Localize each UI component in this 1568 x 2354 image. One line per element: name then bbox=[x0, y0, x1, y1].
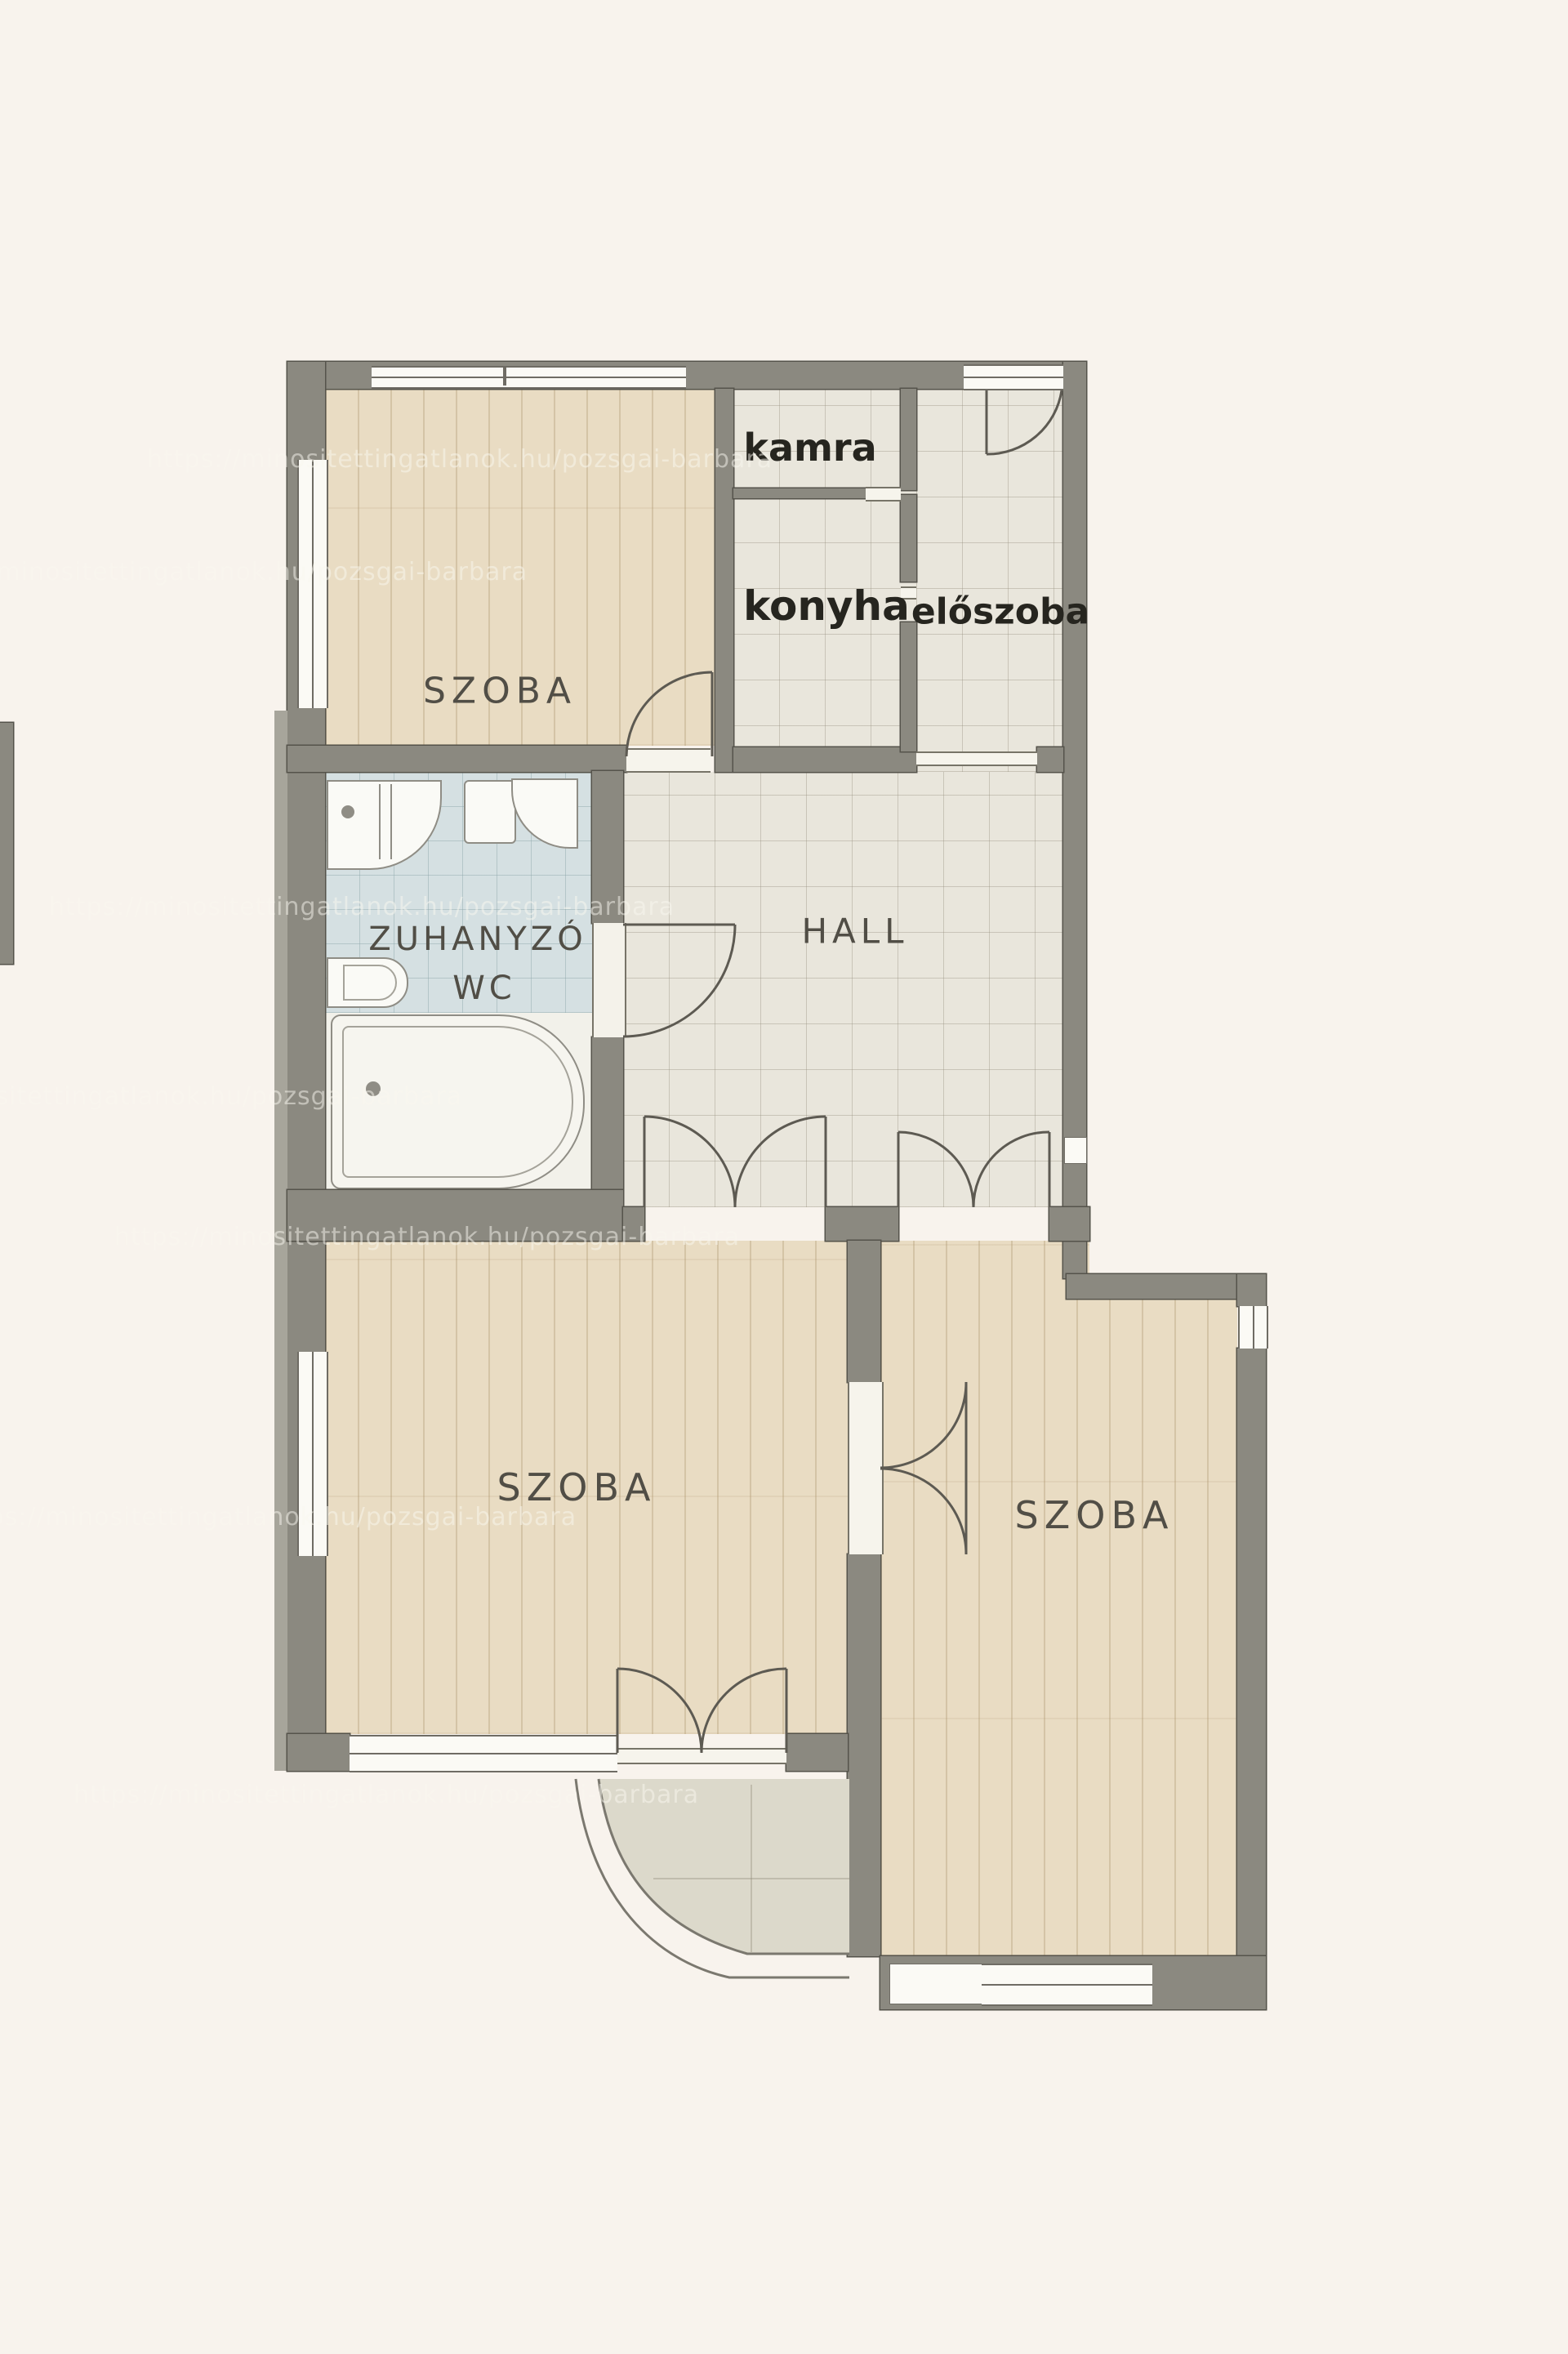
hall-floor bbox=[623, 772, 1063, 1207]
exterior-notch-mask bbox=[1089, 1241, 1241, 1277]
label-room-top-left: SZOBA bbox=[423, 671, 577, 712]
wall-hall-bottom-b bbox=[826, 1207, 898, 1241]
floor-plan: SZOBA kamra konyha előszoba ZUHANYZÓ WC … bbox=[0, 0, 1568, 2354]
wall-room-left-bottom-a bbox=[287, 1734, 350, 1771]
threshold-balcony-door bbox=[617, 1748, 786, 1764]
wall-right-lower-a bbox=[1237, 1274, 1266, 1306]
rooms-divider-door-band bbox=[848, 1382, 884, 1554]
label-shower-wc-2: WC bbox=[452, 970, 515, 1007]
window-hall-right-notch bbox=[1064, 1137, 1087, 1164]
entry-door-opening-band bbox=[964, 364, 1063, 390]
neighbor-wall-fragment bbox=[0, 723, 13, 964]
room-bottom-right-floor bbox=[880, 1241, 1237, 1956]
toilet-bowl bbox=[343, 965, 397, 1001]
balcony-railing-inner bbox=[599, 1779, 849, 1954]
wall-hall-bottom-a bbox=[623, 1207, 644, 1241]
window-top-room1 bbox=[372, 366, 686, 389]
wall-entry-bottom-stub bbox=[1037, 747, 1063, 772]
wall-step bbox=[1067, 1274, 1266, 1299]
threshold-entry-hall bbox=[916, 751, 1037, 766]
wall-kitchen-entry-divider-b bbox=[901, 495, 916, 582]
sink-faucet bbox=[341, 805, 354, 818]
wall-rooms-divider-a bbox=[848, 1241, 880, 1382]
wall-kitchen-entry-divider-a bbox=[901, 389, 916, 490]
window-top-room1-mullion bbox=[503, 366, 506, 386]
label-shower-wc-1: ZUHANYZÓ bbox=[368, 921, 586, 958]
wall-rooms-divider-b bbox=[848, 1554, 880, 1956]
label-kitchen: konyha bbox=[743, 582, 910, 630]
label-pantry: kamra bbox=[743, 426, 876, 470]
wall-bathroom-bottom bbox=[287, 1190, 623, 1241]
washing-machine bbox=[464, 780, 516, 844]
window-left-room1 bbox=[297, 460, 328, 708]
window-bottom-right bbox=[982, 1964, 1152, 2006]
balcony-railing-outer bbox=[576, 1779, 849, 1977]
wall-room1-bottom bbox=[287, 746, 626, 772]
wall-bathroom-right-a bbox=[592, 771, 623, 923]
label-hall: HALL bbox=[801, 912, 908, 952]
wall-hall-bottom-c bbox=[1049, 1207, 1089, 1241]
label-room-bottom-left: SZOBA bbox=[497, 1465, 657, 1509]
window-right-wall bbox=[1238, 1306, 1268, 1349]
wall-pantry-bottom bbox=[733, 488, 866, 498]
window-bottom-left bbox=[350, 1735, 617, 1772]
wall-kitchen-entry-divider-c bbox=[901, 622, 916, 751]
watermark-row: https://minositettingatlanok.hu/pozsgai-… bbox=[73, 1781, 699, 1809]
wall-right-lower-b bbox=[1237, 1349, 1266, 2009]
bathroom-door-gap bbox=[592, 923, 626, 1037]
sink-rail bbox=[379, 784, 392, 859]
wall-kitchen-bottom bbox=[733, 747, 916, 772]
wall-room-left-bottom-b bbox=[786, 1734, 848, 1771]
label-entry-hall: előszoba bbox=[911, 591, 1089, 633]
label-room-bottom-right: SZOBA bbox=[1015, 1493, 1174, 1537]
wall-bathroom-right-b bbox=[592, 1037, 623, 1190]
threshold-room1-door bbox=[626, 748, 710, 773]
threshold-pantry-door bbox=[866, 487, 901, 502]
window-left-room-bottom bbox=[297, 1352, 328, 1556]
bathtub-inner bbox=[342, 1026, 573, 1178]
balcony-floor bbox=[599, 1779, 849, 1954]
bathtub-faucet bbox=[366, 1081, 381, 1096]
window-bottom-right-sill bbox=[889, 1964, 983, 2004]
wall-left-outer-strip bbox=[274, 711, 287, 1771]
wall-room1-kitchen-divider bbox=[715, 389, 733, 772]
